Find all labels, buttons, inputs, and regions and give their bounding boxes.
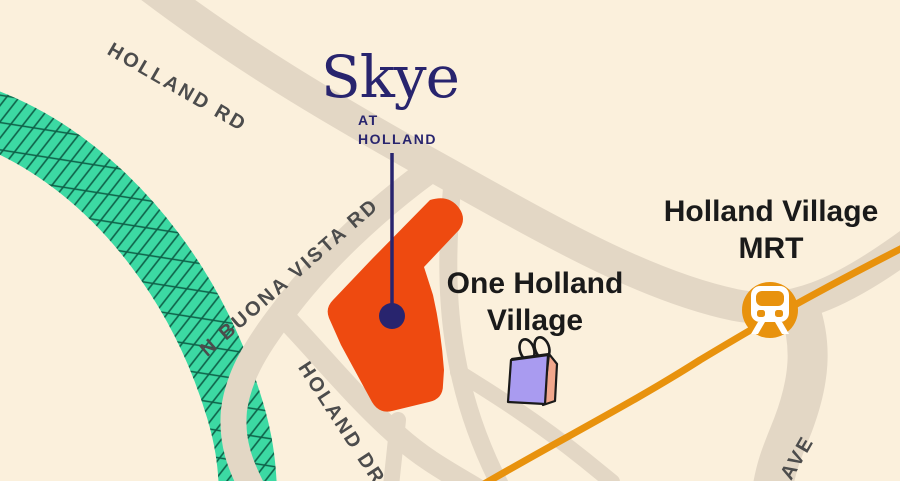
place-label-line: Holland Village [664, 193, 879, 230]
place-label-line: One Holland [447, 265, 624, 302]
road-access-stub [391, 420, 398, 481]
logo-tagline-line1: AT [358, 111, 437, 130]
skye-logo-tagline: AT HOLLAND [358, 111, 437, 149]
skye-logo-wordmark: Skye [321, 43, 459, 111]
location-map: Skye AT HOLLAND HOLLAND RD N BUONA VISTA… [0, 0, 900, 481]
logo-tagline-line2: HOLLAND [358, 130, 437, 149]
place-label-holland-village-mrt: Holland Village MRT [664, 193, 879, 267]
place-label-one-holland-village: One Holland Village [447, 265, 624, 339]
pin-dot-icon [379, 303, 405, 329]
mrt-station-icon [742, 282, 798, 338]
place-label-line: Village [447, 302, 624, 339]
place-label-line: MRT [664, 230, 879, 267]
